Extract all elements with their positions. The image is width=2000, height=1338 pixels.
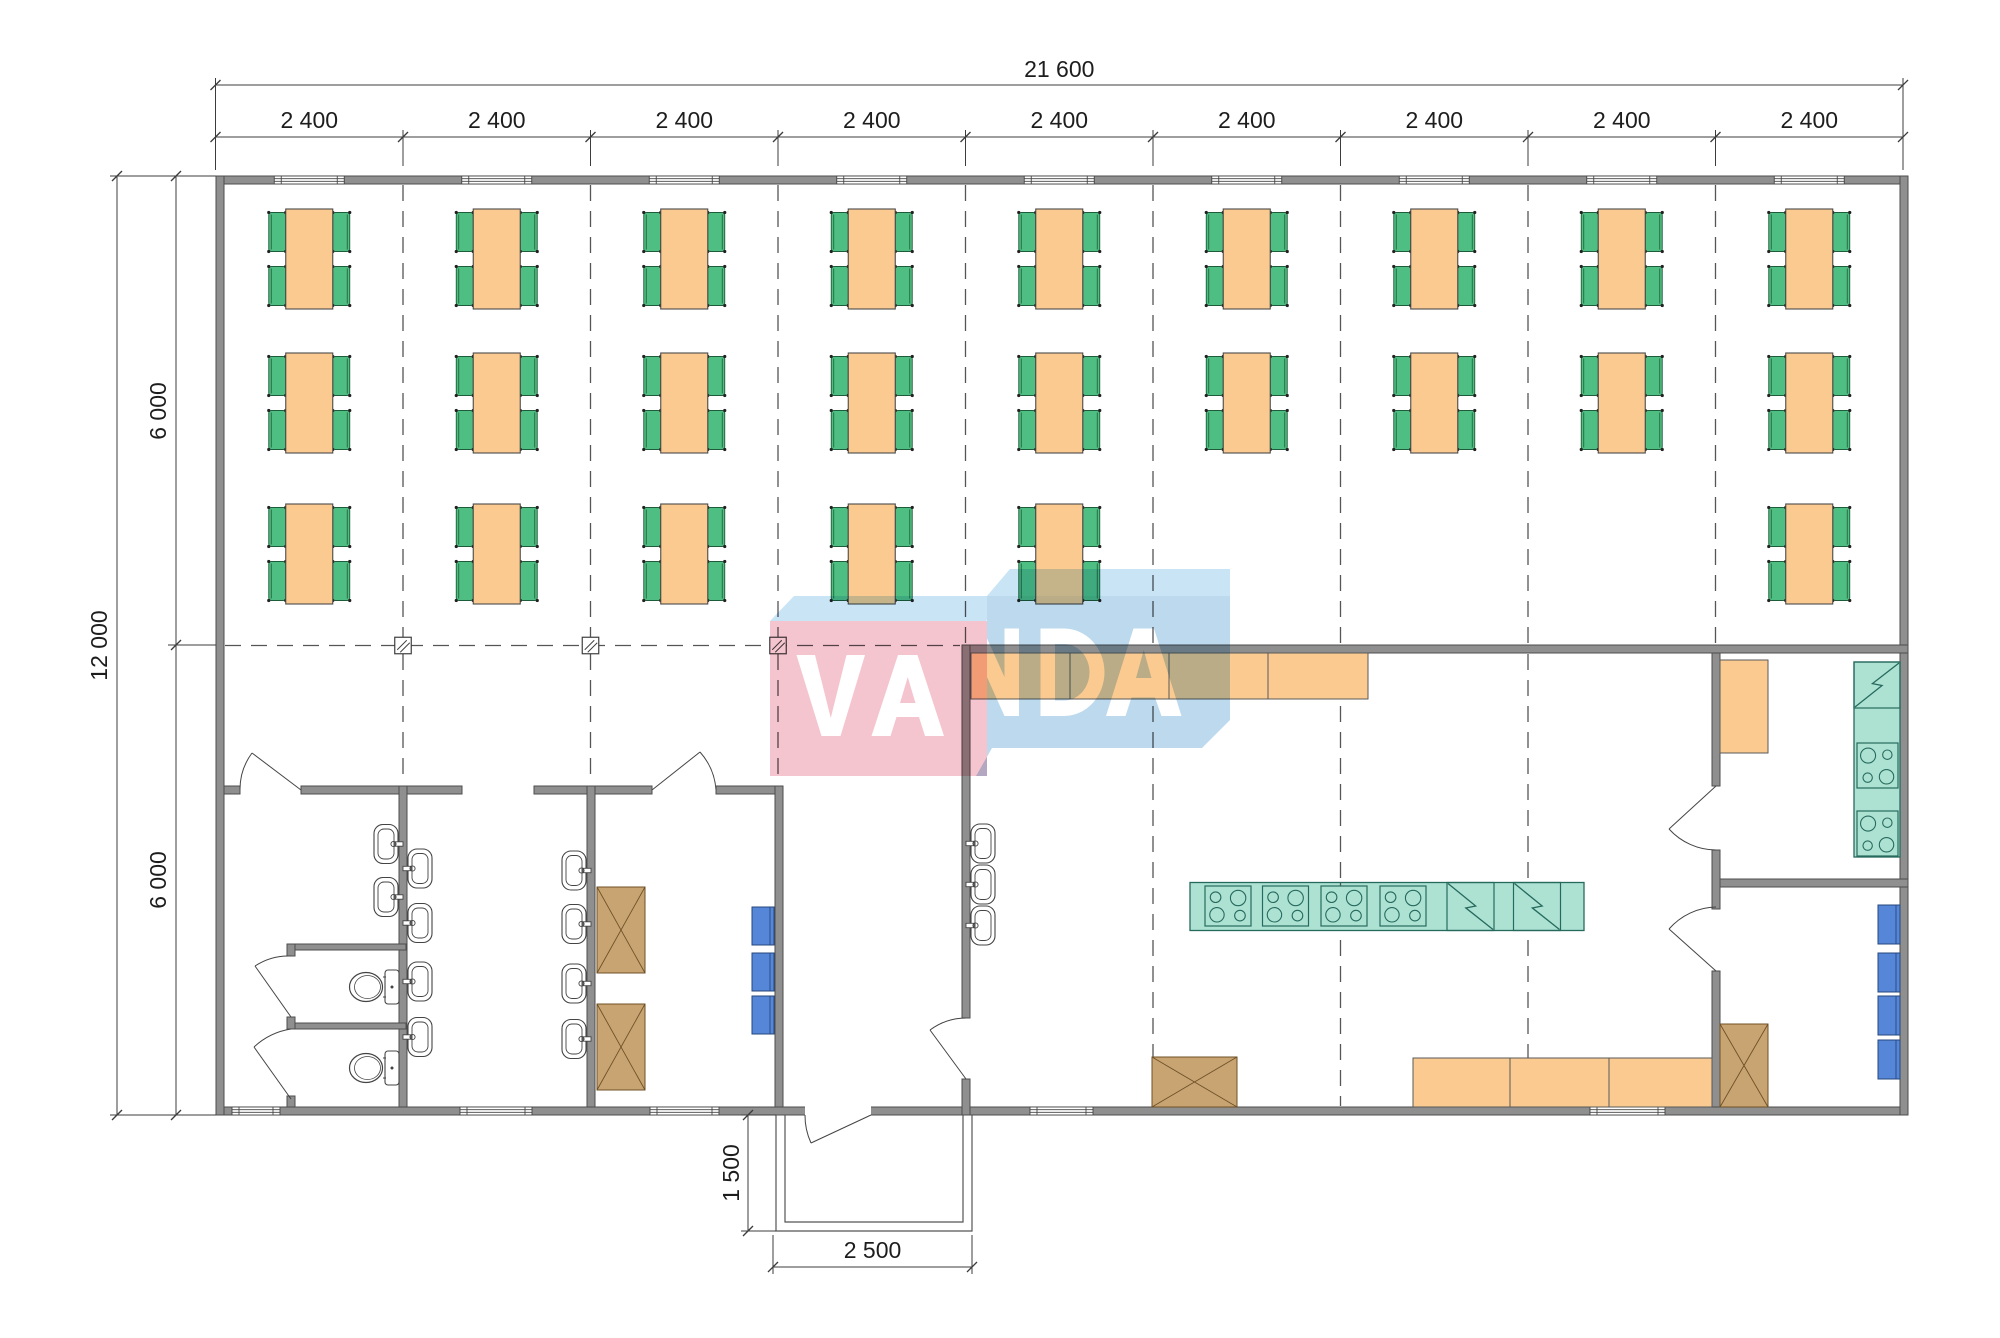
svg-text:2 400: 2 400 [1780,107,1838,133]
svg-text:2 400: 2 400 [655,107,713,133]
svg-text:6 000: 6 000 [145,851,171,909]
svg-text:2 500: 2 500 [844,1237,902,1263]
svg-text:2 400: 2 400 [1030,107,1088,133]
svg-text:2 400: 2 400 [1405,107,1463,133]
svg-text:2 400: 2 400 [843,107,901,133]
svg-text:12 000: 12 000 [86,610,112,680]
svg-text:2 400: 2 400 [1593,107,1651,133]
svg-text:6 000: 6 000 [145,382,171,440]
svg-text:21 600: 21 600 [1024,56,1094,82]
svg-text:2 400: 2 400 [1218,107,1276,133]
svg-text:2 400: 2 400 [280,107,338,133]
svg-text:1 500: 1 500 [718,1144,744,1202]
svg-text:2 400: 2 400 [468,107,526,133]
